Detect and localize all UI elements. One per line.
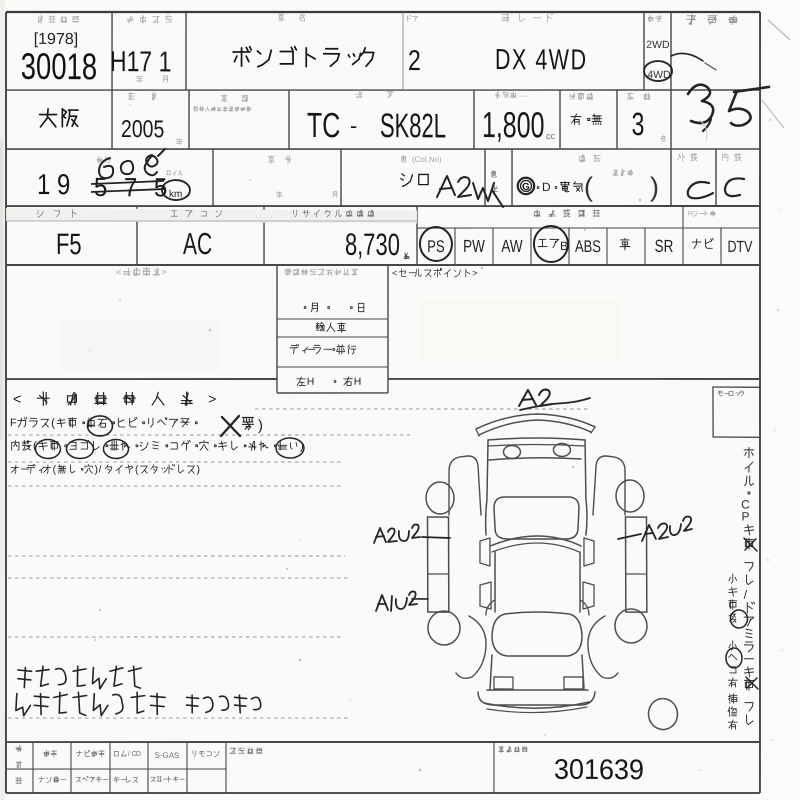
svg-text:R: R xyxy=(688,211,693,218)
svg-text:S-GAS: S-GAS xyxy=(154,751,179,760)
svg-text:ABS: ABS xyxy=(575,237,601,256)
svg-text:>: > xyxy=(208,392,216,408)
svg-text:1 9: 1 9 xyxy=(37,168,70,201)
svg-text:>: > xyxy=(161,267,166,277)
svg-text:D: D xyxy=(542,180,551,194)
svg-text:30018: 30018 xyxy=(21,45,98,87)
svg-text:AW: AW xyxy=(501,237,522,256)
svg-text:PW: PW xyxy=(463,237,485,256)
svg-text:<: < xyxy=(392,268,397,278)
svg-text:/: / xyxy=(99,465,102,476)
svg-text:H17 1: H17 1 xyxy=(110,45,171,78)
svg-text:P: P xyxy=(741,509,749,523)
svg-text:): ) xyxy=(258,417,263,434)
svg-text:): ) xyxy=(197,464,201,476)
svg-text:D: D xyxy=(136,750,141,758)
svg-text:<: < xyxy=(13,392,21,408)
svg-text:----: ---- xyxy=(519,93,529,100)
svg-text:F: F xyxy=(10,417,17,429)
svg-text:2WD: 2WD xyxy=(646,39,670,51)
svg-text:): ) xyxy=(94,464,98,476)
svg-text:SK82L: SK82L xyxy=(380,107,446,145)
svg-text:H: H xyxy=(307,377,315,388)
svg-text:<: < xyxy=(116,267,121,277)
svg-text:DTV: DTV xyxy=(727,238,752,256)
svg-text:TC: TC xyxy=(307,106,340,145)
svg-text:(Col.No): (Col.No) xyxy=(412,155,442,164)
svg-text:8,730: 8,730 xyxy=(345,227,400,262)
svg-text:2005: 2005 xyxy=(121,115,164,143)
svg-text:PS: PS xyxy=(427,237,444,256)
svg-text:1,800: 1,800 xyxy=(482,104,545,145)
svg-text:F5: F5 xyxy=(56,227,82,261)
svg-text:(: ( xyxy=(53,464,57,476)
svg-text:-: - xyxy=(350,113,357,138)
svg-text:301639: 301639 xyxy=(554,753,644,785)
svg-text:H: H xyxy=(354,377,362,388)
svg-text:(: ( xyxy=(135,464,139,476)
svg-text:2: 2 xyxy=(408,43,421,76)
svg-text:DX 4WD: DX 4WD xyxy=(495,44,588,76)
svg-text:): ) xyxy=(650,172,659,202)
svg-text:(: ( xyxy=(584,172,593,202)
svg-text:AC: AC xyxy=(183,226,212,261)
svg-text:3: 3 xyxy=(631,106,644,142)
svg-text:>: > xyxy=(472,268,477,278)
svg-text:(: ( xyxy=(51,416,55,429)
svg-text:/: / xyxy=(128,750,130,758)
svg-text:cc: cc xyxy=(546,131,556,141)
svg-text:SR: SR xyxy=(655,237,674,256)
